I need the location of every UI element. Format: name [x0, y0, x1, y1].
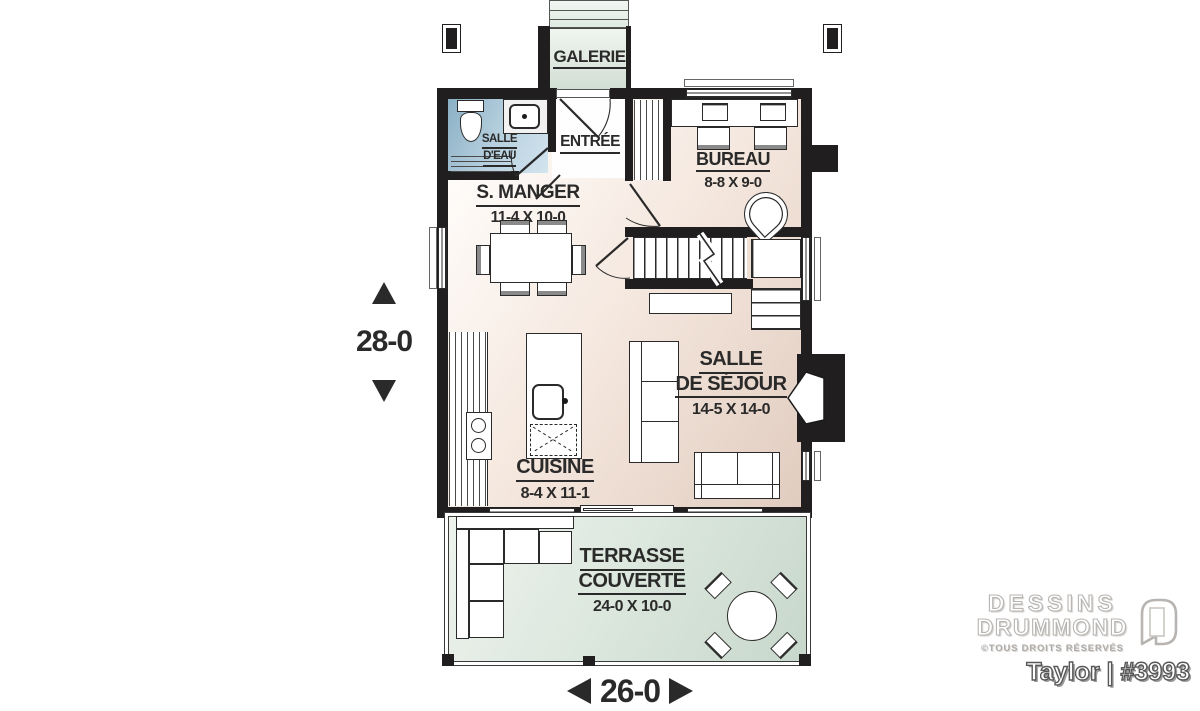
cuisine-name: CUISINE: [516, 457, 594, 482]
sejour-name-2: DE SÉJOUR: [675, 374, 786, 399]
depth-dimension-value: 28-0: [356, 325, 412, 359]
dishwasher-x-icon: [531, 425, 575, 454]
terrasse-dims: 24-0 X 10-0: [562, 598, 702, 615]
stair-window: [802, 237, 811, 301]
sectional-back-left: [456, 529, 469, 639]
terrasse-name-1: TERRASSE: [580, 546, 685, 571]
salle-de-sejour-label: SALLE DE SÉJOUR 14-5 X 14-0: [663, 349, 799, 418]
arrow-right-icon: [669, 678, 693, 704]
office-chair: [697, 127, 730, 150]
terrasse-label: TERRASSE COUVERTE 24-0 X 10-0: [562, 546, 702, 615]
stair-break-line-icon: [690, 234, 732, 284]
stair-landing: [751, 239, 801, 278]
bureau-name: BUREAU: [696, 150, 770, 172]
burner-icon: [471, 418, 486, 433]
arrow-up-icon: [372, 282, 396, 304]
terrace-post: [799, 654, 811, 666]
galerie-name: GALERIE: [553, 48, 625, 69]
dining-chair: [537, 282, 567, 296]
step-line: [550, 19, 628, 20]
loveseat: [694, 452, 780, 499]
dining-table: [490, 233, 572, 283]
window-sill: [429, 227, 437, 289]
width-dimension: 26-0: [540, 674, 720, 708]
faucet-icon: [562, 398, 568, 404]
galerie-steps: [549, 0, 629, 28]
floor-plan: GALERIE SALLE D'EAU: [0, 0, 1200, 711]
dining-chair: [572, 245, 586, 275]
office-chair: [754, 127, 787, 150]
galerie-label: GALERIE: [549, 48, 630, 69]
brand-line-1: DESSINS: [988, 592, 1117, 615]
sofa-back: [630, 342, 642, 462]
understair-door-swing-icon: [592, 234, 632, 280]
sofa-cushion-line: [642, 421, 678, 422]
burner-icon: [471, 438, 486, 453]
bureau-label: BUREAU 8-8 X 9-0: [666, 150, 800, 192]
rights-text: ©TOUS DROITS RÉSERVÉS: [981, 643, 1124, 654]
island-sink: [532, 384, 564, 420]
arrow-left-icon: [567, 678, 591, 704]
sectional-cushion: [504, 529, 539, 564]
terrasse-name-2: COUVERTE: [578, 571, 685, 596]
entree-label: ENTRÉE: [552, 134, 628, 154]
wall-stair-bottom: [625, 279, 753, 289]
monitor-icon: [760, 103, 786, 121]
dishwasher-dashed: [530, 424, 577, 456]
terrace-post: [583, 656, 595, 666]
sejour-name-1: SALLE: [699, 349, 762, 374]
deck-post-right: [824, 25, 841, 52]
console-table: [649, 293, 732, 314]
sectional-cushion: [469, 529, 504, 564]
entree-name: ENTRÉE: [560, 134, 620, 154]
loveseat-arm: [695, 453, 702, 498]
dining-chair: [476, 245, 490, 275]
faucet-icon: [522, 114, 527, 119]
sectional-back-top: [456, 516, 574, 529]
sejour-dims: 14-5 X 14-0: [663, 401, 799, 418]
cuisine-label: CUISINE 8-4 X 11-1: [493, 457, 617, 502]
width-dimension-value: 26-0: [600, 673, 660, 710]
window-sill: [684, 79, 794, 87]
patio-table: [727, 591, 777, 641]
drummond-logo-icon: [1136, 592, 1180, 650]
loveseat-arm: [772, 453, 779, 498]
dining-window: [438, 227, 447, 289]
sectional-cushion: [469, 601, 504, 638]
wall-top-left: [437, 88, 557, 99]
slider-panel: [583, 508, 633, 511]
dining-chair: [500, 220, 530, 234]
stair-lower-steps: [751, 288, 801, 330]
entry-closet: [634, 100, 663, 180]
dining-chair: [537, 220, 567, 234]
depth-dimension: 28-0: [346, 282, 422, 402]
window-sill: [814, 237, 821, 301]
plan-title: Taylor | #3993: [940, 658, 1190, 687]
toilet-tank: [457, 100, 484, 112]
brand-text: DESSINS DRUMMOND ©TOUS DROITS RÉSERVÉS: [977, 592, 1128, 654]
salle-a-manger-name: S. MANGER: [476, 183, 579, 207]
living-window: [802, 451, 811, 481]
chimney: [812, 145, 838, 172]
bureau-door-swing-icon: [624, 180, 672, 232]
window-sill: [814, 451, 821, 481]
terrace-post: [442, 654, 454, 666]
sectional-cushion: [469, 564, 504, 601]
monitor-icon: [702, 103, 728, 121]
loveseat-cushion-line: [737, 453, 738, 484]
cuisine-dims: 8-4 X 11-1: [493, 485, 617, 502]
bureau-dims: 8-8 X 9-0: [666, 175, 800, 191]
deck-post-left: [443, 25, 460, 52]
step-line: [550, 10, 628, 11]
dining-chair: [500, 282, 530, 296]
loveseat-back: [695, 484, 779, 498]
brand-block: DESSINS DRUMMOND ©TOUS DROITS RÉSERVÉS: [980, 592, 1180, 654]
brand-line-2: DRUMMOND: [977, 615, 1128, 640]
arrow-down-icon: [372, 380, 396, 402]
bureau-window: [686, 89, 792, 98]
